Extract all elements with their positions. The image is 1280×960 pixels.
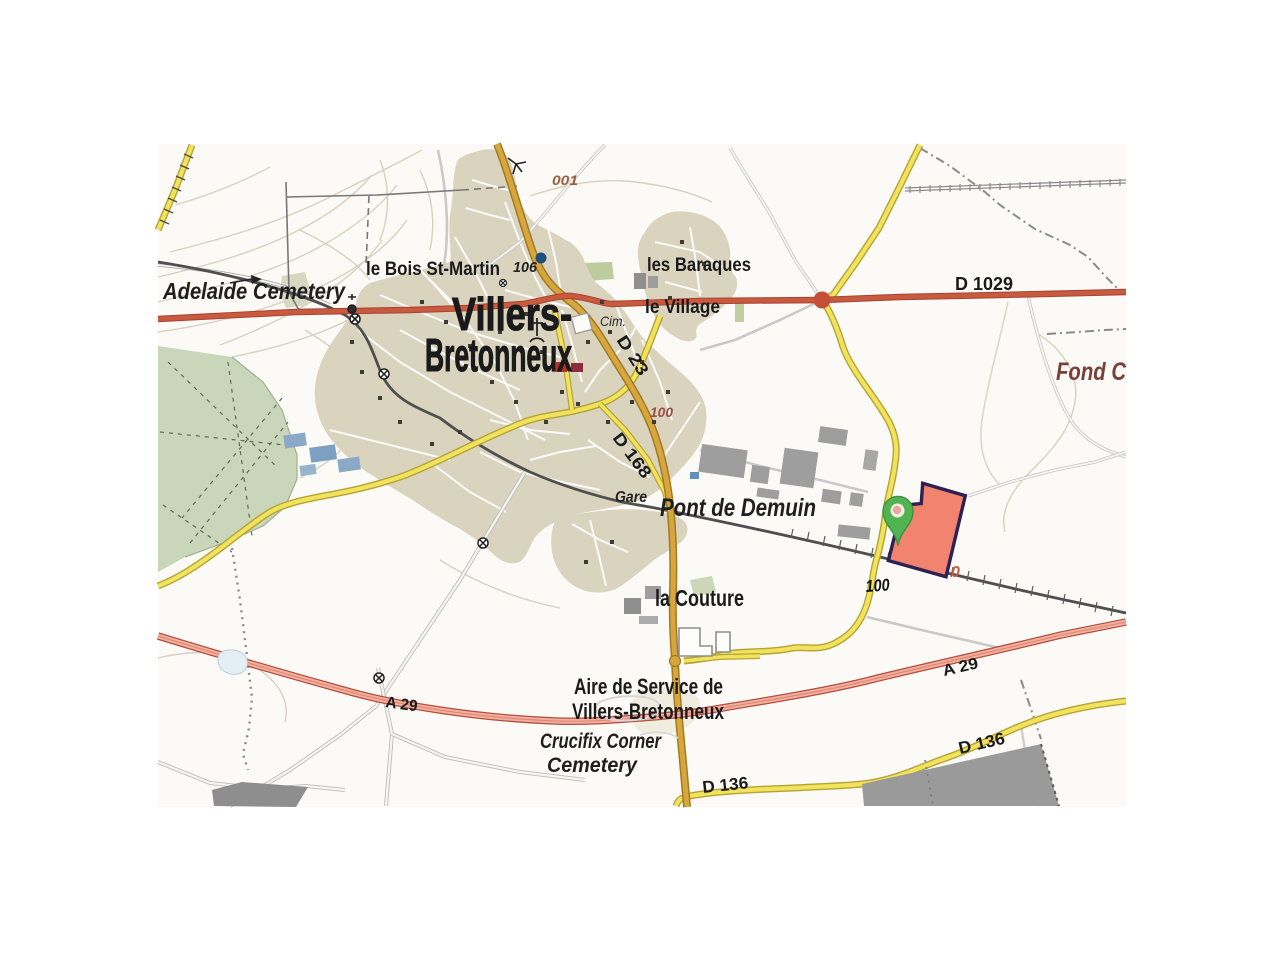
svg-text:100: 100 — [865, 575, 891, 596]
svg-text:Crucifix Corner: Crucifix Corner — [540, 730, 662, 753]
svg-text:le Village: le Village — [645, 297, 720, 318]
svg-text:Adelaide Cemetery: Adelaide Cemetery — [162, 278, 346, 304]
svg-text:Pont de Demuin: Pont de Demuin — [660, 494, 816, 522]
svg-text:Aire de Service de: Aire de Service de — [574, 674, 723, 699]
svg-text:001: 001 — [552, 172, 578, 188]
svg-text:Fond C: Fond C — [1056, 358, 1127, 386]
svg-text:Bretonneux: Bretonneux — [425, 329, 572, 381]
svg-text:les Baraques: les Baraques — [647, 255, 751, 276]
svg-text:la Couture: la Couture — [655, 585, 744, 611]
svg-text:100: 100 — [650, 404, 673, 420]
svg-text:le Bois St-Martin: le Bois St-Martin — [366, 259, 500, 280]
svg-text:0: 0 — [951, 564, 960, 581]
svg-text:Cim.: Cim. — [600, 313, 626, 329]
svg-text:106: 106 — [513, 259, 538, 276]
svg-text:D 1029: D 1029 — [955, 274, 1013, 294]
svg-text:Gare: Gare — [615, 489, 647, 506]
svg-text:Cemetery: Cemetery — [547, 754, 638, 777]
svg-text:Villers-Bretonneux: Villers-Bretonneux — [572, 699, 725, 724]
